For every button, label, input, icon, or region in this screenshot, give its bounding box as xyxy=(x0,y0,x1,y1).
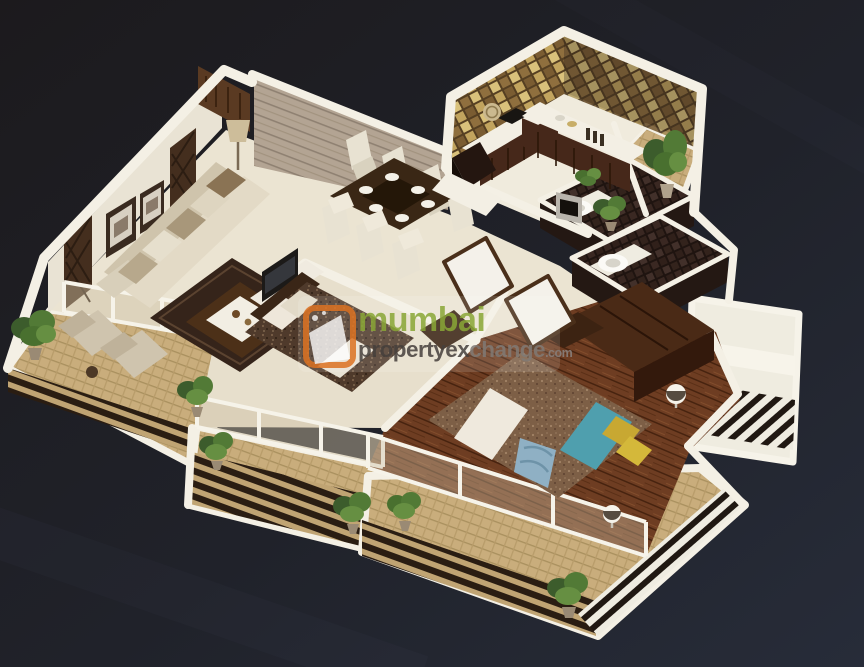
oven xyxy=(556,192,582,224)
apartment-render-canvas: mumbai propertyexchange.com xyxy=(0,0,864,667)
watermark: mumbai propertyexchange.com xyxy=(298,296,573,372)
brand-line1: mumbai xyxy=(358,301,485,339)
brand-line2: propertyexchange.com xyxy=(358,337,573,362)
